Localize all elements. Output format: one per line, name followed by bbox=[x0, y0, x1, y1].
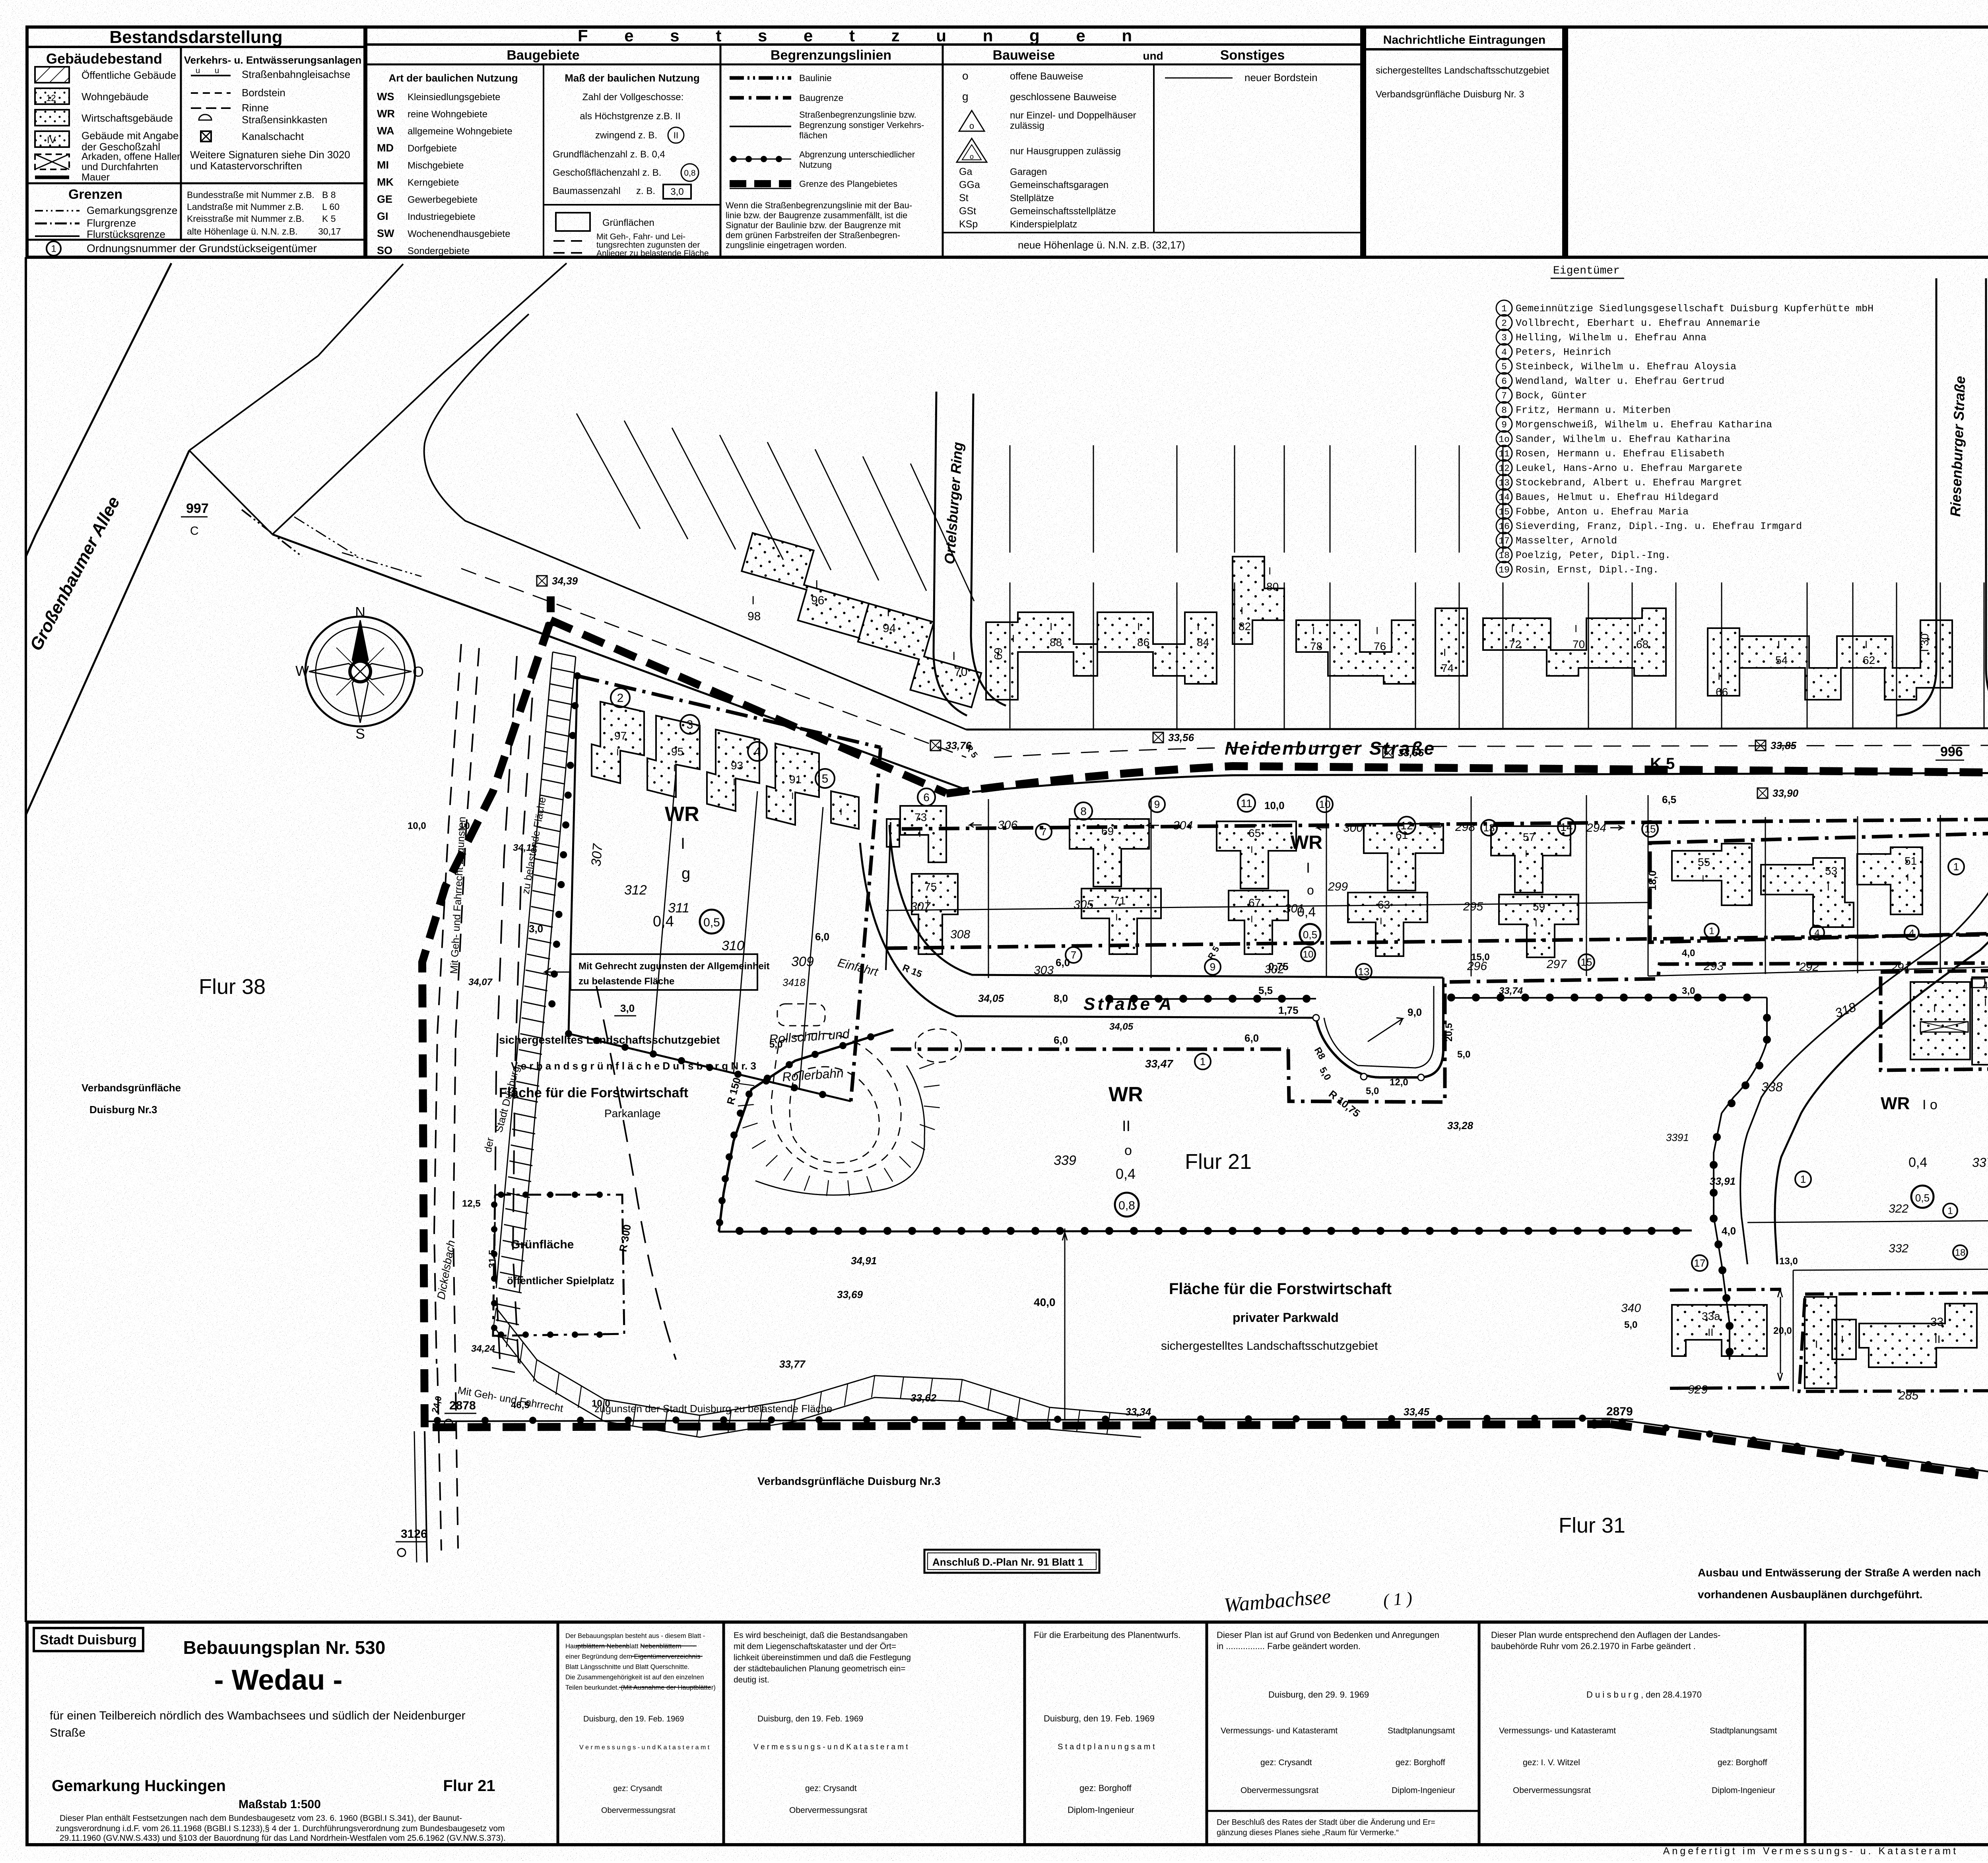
svg-text:Gebäudebestand: Gebäudebestand bbox=[46, 50, 162, 67]
svg-text:5: 5 bbox=[822, 772, 829, 786]
svg-text:Eigentümer: Eigentümer bbox=[1553, 265, 1620, 277]
svg-text:13: 13 bbox=[1358, 966, 1370, 978]
svg-text:Sieverding, Franz, Dipl.-Ing.: Sieverding, Franz, Dipl.-Ing. u. Ehefrau… bbox=[1516, 521, 1802, 532]
svg-text:Blatt Längsschnitte und: Blatt Längsschnitte und Blatt Querschnit… bbox=[565, 1663, 689, 1671]
svg-text:Straßenbahngleisachse: Straßenbahngleisachse bbox=[242, 68, 350, 80]
svg-text:GSt: GSt bbox=[959, 206, 976, 217]
svg-text:0,8: 0,8 bbox=[684, 169, 695, 178]
svg-text:20,0: 20,0 bbox=[1773, 1325, 1792, 1336]
svg-text:o: o bbox=[970, 153, 974, 161]
svg-text:78: 78 bbox=[1310, 640, 1322, 652]
svg-text:Masselter, Arnold: Masselter, Arnold bbox=[1516, 535, 1617, 547]
svg-text:sichergestelltes Landschaft: sichergestelltes Landschaftsschutzgebiet bbox=[499, 1034, 720, 1046]
svg-text:34,91: 34,91 bbox=[851, 1255, 877, 1267]
svg-text:297: 297 bbox=[1546, 958, 1567, 971]
svg-text:privater Parkwald: privater Parkwald bbox=[1233, 1310, 1339, 1325]
svg-text:Nachrichtliche Eintragungen: Nachrichtliche Eintragungen bbox=[1383, 33, 1545, 47]
svg-text:5,5: 5,5 bbox=[1258, 984, 1273, 996]
svg-text:0,75: 0,75 bbox=[1268, 961, 1289, 972]
svg-text:II: II bbox=[1934, 1333, 1941, 1345]
svg-text:mit dem Liegenschaftskataster: mit dem Liegenschaftskataster und der Ör… bbox=[734, 1642, 896, 1651]
svg-text:Flur 21: Flur 21 bbox=[443, 1777, 495, 1795]
svg-text:7: 7 bbox=[1041, 826, 1046, 838]
svg-text:I: I bbox=[1865, 638, 1868, 650]
svg-text:3,0: 3,0 bbox=[529, 923, 543, 935]
svg-text:Dorfgebiete: Dorfgebiete bbox=[408, 143, 457, 154]
svg-text:Dieser Plan ist auf Grund von: Dieser Plan ist auf Grund von Bedenken u… bbox=[1217, 1630, 1439, 1640]
svg-text:304: 304 bbox=[1173, 819, 1193, 832]
svg-text:geschlossene Bauweise: geschlossene Bauweise bbox=[1010, 91, 1116, 103]
svg-text:GI: GI bbox=[377, 210, 388, 222]
svg-text:- Wedau -: - Wedau - bbox=[214, 1664, 343, 1696]
svg-text:6,0: 6,0 bbox=[1056, 957, 1070, 968]
svg-text:I: I bbox=[1197, 621, 1200, 633]
svg-text:I: I bbox=[1306, 860, 1310, 876]
svg-text:vorhandenen Ausbauplänen d: vorhandenen Ausbauplänen durchgeführt. bbox=[1698, 1588, 1922, 1601]
svg-text:deutig ist.: deutig ist. bbox=[734, 1675, 769, 1684]
svg-text:4: 4 bbox=[754, 745, 761, 759]
svg-text:Duisburg Nr.3: Duisburg Nr.3 bbox=[89, 1104, 157, 1116]
svg-text:I: I bbox=[1702, 873, 1705, 884]
svg-text:57: 57 bbox=[1523, 831, 1535, 843]
svg-text:Vermessungs- und Katasteramt: Vermessungs- und Katasteramt bbox=[1499, 1726, 1616, 1735]
svg-text:Begrenzung sonstiger Verkehrs-: Begrenzung sonstiger Verkehrs- bbox=[799, 120, 924, 130]
svg-text:10,0: 10,0 bbox=[408, 821, 426, 831]
svg-text:Mit Gehrecht zugunsten der All: Mit Gehrecht zugunsten der Allgemeinheit bbox=[579, 961, 770, 972]
svg-text:51: 51 bbox=[1905, 855, 1917, 867]
svg-text:10,0: 10,0 bbox=[592, 1398, 610, 1409]
svg-text:Ga: Ga bbox=[959, 166, 972, 177]
svg-text:1: 1 bbox=[1953, 861, 1959, 873]
svg-text:298: 298 bbox=[1455, 821, 1475, 834]
svg-text:Angefertigt im Vermessungs-: Angefertigt im Vermessungs- u. Katastera… bbox=[1663, 1846, 1959, 1857]
svg-text:33,85: 33,85 bbox=[1771, 739, 1797, 751]
svg-text:II: II bbox=[674, 130, 678, 140]
svg-text:zulässig: zulässig bbox=[1010, 120, 1044, 131]
svg-text:Ordnungsnummer der Grundstüc: Ordnungsnummer der Grundstückseigentümer bbox=[87, 242, 317, 254]
svg-text:300: 300 bbox=[1343, 821, 1363, 834]
svg-text:Verbandsgrünfläche: Verbandsgrünfläche bbox=[82, 1082, 181, 1094]
svg-text:2878: 2878 bbox=[449, 1399, 476, 1412]
svg-text:Leukel, Hans-Arno u. Ehefrau M: Leukel, Hans-Arno u. Ehefrau Margarete bbox=[1516, 463, 1742, 474]
svg-text:285: 285 bbox=[1898, 1389, 1918, 1402]
svg-text:O: O bbox=[413, 664, 424, 680]
svg-text:Stadt Duisburg: Stadt Duisburg bbox=[40, 1632, 137, 1648]
svg-text:Kerngebiete: Kerngebiete bbox=[408, 177, 459, 188]
svg-text:I: I bbox=[1638, 623, 1641, 635]
svg-text:WA: WA bbox=[377, 125, 394, 137]
svg-text:70: 70 bbox=[1573, 638, 1585, 650]
svg-text:67: 67 bbox=[1248, 897, 1261, 909]
svg-text:3391: 3391 bbox=[1666, 1131, 1689, 1143]
svg-text:69: 69 bbox=[1101, 825, 1114, 837]
svg-text:I: I bbox=[1398, 846, 1400, 857]
svg-text:10: 10 bbox=[1303, 949, 1314, 960]
svg-text:88: 88 bbox=[1050, 636, 1062, 648]
svg-text:Wochenendhausgebiete: Wochenendhausgebiete bbox=[408, 229, 510, 239]
svg-text:sichergestelltes Landschaft: sichergestelltes Landschaftsschutzgebiet bbox=[1161, 1339, 1378, 1353]
svg-text:Baugrenze: Baugrenze bbox=[799, 93, 843, 103]
svg-text:Steinbeck, Wilhelm u. Ehefrau: Steinbeck, Wilhelm u. Ehefrau Aloysia bbox=[1516, 361, 1736, 373]
svg-text:0,5: 0,5 bbox=[703, 916, 720, 929]
svg-text:12,0: 12,0 bbox=[1390, 1077, 1408, 1088]
svg-text:12: 12 bbox=[1400, 819, 1413, 832]
svg-text:339: 339 bbox=[1054, 1153, 1076, 1168]
svg-text:I: I bbox=[1906, 872, 1909, 883]
svg-text:53: 53 bbox=[1825, 865, 1837, 877]
svg-text:o: o bbox=[962, 70, 969, 82]
svg-text:I o: I o bbox=[1922, 1097, 1938, 1112]
svg-text:Kleinsiedlungsgebiete: Kleinsiedlungsgebiete bbox=[408, 92, 501, 103]
svg-text:Diplom-Ingenieur: Diplom-Ingenieur bbox=[1392, 1786, 1455, 1795]
svg-text:allgemeine Wohngebiete: allgemeine Wohngebiete bbox=[408, 126, 513, 137]
svg-text:14: 14 bbox=[1499, 493, 1510, 503]
svg-text:u: u bbox=[196, 66, 200, 75]
svg-text:Obervermessungsrat: Obervermessungsrat bbox=[1513, 1786, 1591, 1795]
svg-text:nur Einzel- und Doppelhäuser: nur Einzel- und Doppelhäuser bbox=[1010, 110, 1136, 121]
svg-text:4: 4 bbox=[1909, 928, 1914, 938]
svg-text:4,0: 4,0 bbox=[1722, 1225, 1736, 1237]
svg-text:11: 11 bbox=[1499, 449, 1510, 459]
svg-text:Grünfläche: Grünfläche bbox=[511, 1238, 574, 1251]
svg-text:Bundesstraße mit Nummer z.B.: Bundesstraße mit Nummer z.B. bbox=[187, 190, 315, 200]
svg-text:Straßensinkkasten: Straßensinkkasten bbox=[242, 114, 327, 126]
svg-text:82: 82 bbox=[1239, 620, 1251, 633]
svg-text:14: 14 bbox=[1560, 821, 1573, 833]
svg-text:I: I bbox=[751, 594, 755, 607]
svg-text:I: I bbox=[815, 578, 818, 591]
svg-text:59: 59 bbox=[1533, 900, 1545, 913]
svg-text:8: 8 bbox=[1080, 805, 1087, 817]
svg-text:gez: Crysandt: gez: Crysandt bbox=[805, 1784, 857, 1793]
svg-text:zugunsten der Stadt Duisbur: zugunsten der Stadt Duisburg zu belasten… bbox=[594, 1403, 832, 1415]
svg-text:I: I bbox=[681, 835, 685, 852]
svg-text:9: 9 bbox=[1210, 961, 1215, 973]
svg-text:Dieser Plan enthält Festset: Dieser Plan enthält Festsetzungen nach d… bbox=[60, 1814, 462, 1823]
svg-text:Bordstein: Bordstein bbox=[242, 87, 285, 99]
svg-text:Verbandsgrünfläche Duisburg N: Verbandsgrünfläche Duisburg Nr.3 bbox=[757, 1475, 941, 1487]
svg-text:293: 293 bbox=[1703, 960, 1724, 973]
svg-text:dem grünen Farbstreifen der St: dem grünen Farbstreifen der Straßenbegre… bbox=[726, 230, 900, 240]
svg-text:WR: WR bbox=[1109, 1083, 1143, 1106]
svg-text:63: 63 bbox=[1378, 899, 1390, 911]
svg-text:Garagen: Garagen bbox=[1010, 167, 1047, 177]
svg-text:1o: 1o bbox=[1499, 435, 1510, 445]
svg-text:öffentlicher Spielplatz: öffentlicher Spielplatz bbox=[507, 1275, 614, 1287]
svg-text:Der Bebauungsplan besteht a: Der Bebauungsplan besteht aus - diesem B… bbox=[565, 1632, 705, 1640]
svg-text:Mischgebiete: Mischgebiete bbox=[408, 160, 464, 171]
svg-text:98: 98 bbox=[747, 610, 761, 623]
svg-text:9: 9 bbox=[1154, 798, 1160, 810]
svg-text:K 5: K 5 bbox=[322, 213, 336, 224]
svg-text:I: I bbox=[791, 791, 794, 801]
svg-text:Obervermessungsrat: Obervermessungsrat bbox=[789, 1806, 867, 1815]
svg-text:91: 91 bbox=[789, 773, 802, 786]
svg-text:17: 17 bbox=[1694, 1257, 1706, 1269]
svg-text:Baugebiete: Baugebiete bbox=[507, 48, 579, 63]
svg-text:WS: WS bbox=[377, 91, 394, 103]
svg-text:312: 312 bbox=[624, 883, 647, 898]
svg-text:0,4: 0,4 bbox=[1297, 904, 1316, 920]
svg-text:33,45: 33,45 bbox=[1404, 1406, 1430, 1418]
svg-text:Dieser Plan wurde entsprechend: Dieser Plan wurde entsprechend den Aufla… bbox=[1491, 1630, 1720, 1640]
svg-text:I 30: I 30 bbox=[1918, 633, 1931, 652]
svg-text:Rinne: Rinne bbox=[242, 102, 269, 114]
svg-text:gez: Borghoff: gez: Borghoff bbox=[1718, 1758, 1767, 1767]
svg-text:zungsverordnung i.d.F. vom 26.: zungsverordnung i.d.F. vom 26.11.1968 (B… bbox=[56, 1824, 505, 1833]
svg-text:o: o bbox=[1307, 883, 1314, 897]
svg-text:13,0: 13,0 bbox=[1779, 1256, 1798, 1267]
svg-text:Duisburg, den 19. Feb. 1969: Duisburg, den 19. Feb. 1969 bbox=[1044, 1714, 1155, 1723]
svg-text:I: I bbox=[1777, 638, 1780, 650]
svg-text:Obervermessungsrat: Obervermessungsrat bbox=[1241, 1786, 1318, 1795]
svg-text:linie bzw. der Baugrenze zusam: linie bzw. der Baugrenze zusammenfällt, … bbox=[726, 210, 907, 220]
svg-text:I: I bbox=[1827, 882, 1830, 893]
svg-text:33,34: 33,34 bbox=[1125, 1406, 1151, 1418]
svg-text:1: 1 bbox=[51, 243, 56, 254]
svg-text:12: 12 bbox=[1499, 464, 1510, 474]
svg-text:86: 86 bbox=[1137, 636, 1149, 648]
svg-text:19: 19 bbox=[1499, 565, 1510, 575]
svg-text:V e r m e s s u n g s - u n d: V e r m e s s u n g s - u n d K a t a s … bbox=[753, 1743, 908, 1751]
svg-text:3,0: 3,0 bbox=[620, 1002, 635, 1014]
svg-text:I: I bbox=[1268, 565, 1271, 577]
svg-text:6,5: 6,5 bbox=[1662, 794, 1676, 805]
svg-text:gez: Crysandt: gez: Crysandt bbox=[613, 1784, 662, 1793]
svg-text:Gemeinschaftsgaragen: Gemeinschaftsgaragen bbox=[1010, 180, 1109, 190]
svg-text:in ................ Farbe geä: in ................ Farbe geändert worde… bbox=[1217, 1641, 1361, 1651]
svg-text:Gemeinnützige Siedlungsgesells: Gemeinnützige Siedlungsgesellschaft Duis… bbox=[1516, 303, 1873, 314]
svg-text:338: 338 bbox=[1761, 1080, 1783, 1094]
svg-text:Landstraße mit Nummer z.B.: Landstraße mit Nummer z.B. bbox=[187, 202, 304, 212]
svg-text:Grünflächen: Grünflächen bbox=[602, 217, 654, 228]
svg-text:Kinderspielplatz: Kinderspielplatz bbox=[1010, 219, 1077, 230]
svg-text:307: 307 bbox=[911, 900, 931, 913]
svg-text:340: 340 bbox=[1621, 1302, 1641, 1315]
svg-text:Zahl der Vollgeschosse:: Zahl der Vollgeschosse: bbox=[582, 92, 684, 103]
svg-text:offene Bauweise: offene Bauweise bbox=[1010, 71, 1083, 82]
svg-text:Öffentliche Gebäude: Öffentliche Gebäude bbox=[82, 69, 176, 81]
svg-text:Gemarkungsgrenze: Gemarkungsgrenze bbox=[87, 204, 177, 216]
svg-text:33,74: 33,74 bbox=[1499, 986, 1523, 996]
svg-text:929: 929 bbox=[1688, 1383, 1708, 1396]
svg-text:gez: Borghoff: gez: Borghoff bbox=[1396, 1758, 1445, 1767]
svg-text:I: I bbox=[918, 829, 921, 839]
svg-text:10,0: 10,0 bbox=[459, 821, 478, 831]
svg-text:Diplom-Ingenieur: Diplom-Ingenieur bbox=[1068, 1805, 1134, 1815]
svg-text:54: 54 bbox=[1775, 654, 1788, 666]
svg-text:34,24: 34,24 bbox=[471, 1343, 495, 1354]
svg-text:337: 337 bbox=[1972, 1155, 1988, 1170]
svg-text:S t a d t p l a n u n g s a m: S t a d t p l a n u n g s a m t bbox=[1058, 1743, 1155, 1751]
svg-text:baubehörde Ruhr vom 26.2.1970: baubehörde Ruhr vom 26.2.1970 in Farbe g… bbox=[1491, 1641, 1696, 1651]
svg-text:6: 6 bbox=[1501, 376, 1507, 387]
svg-text:Helling, Wilhelm u. Ehefrau An: Helling, Wilhelm u. Ehefrau Anna bbox=[1516, 332, 1706, 343]
svg-text:I: I bbox=[1718, 670, 1720, 682]
svg-text:Flur 21: Flur 21 bbox=[1185, 1150, 1252, 1174]
svg-text:33,69: 33,69 bbox=[837, 1289, 863, 1300]
svg-text:299: 299 bbox=[1328, 880, 1348, 893]
svg-text:2: 2 bbox=[617, 692, 624, 705]
svg-text:8,0: 8,0 bbox=[1054, 992, 1068, 1004]
svg-text:46,5: 46,5 bbox=[511, 1400, 530, 1411]
svg-text:Rosin, Ernst, Dipl.-Ing.: Rosin, Ernst, Dipl.-Ing. bbox=[1516, 564, 1659, 576]
svg-text:I: I bbox=[733, 777, 736, 788]
svg-text:MK: MK bbox=[377, 176, 394, 188]
svg-text:g: g bbox=[962, 90, 969, 103]
svg-text:1: 1 bbox=[1501, 304, 1507, 314]
svg-text:Für die Erarbeitung des Planen: Für die Erarbeitung des Planentwurfs. bbox=[1034, 1630, 1180, 1640]
svg-text:6,0: 6,0 bbox=[1244, 1032, 1259, 1044]
svg-text:3: 3 bbox=[687, 718, 693, 732]
svg-text:SW: SW bbox=[377, 227, 394, 239]
svg-text:5: 5 bbox=[1501, 362, 1507, 372]
svg-text:Bestandsdarstellung: Bestandsdarstellung bbox=[109, 27, 282, 47]
svg-text:40,0: 40,0 bbox=[1034, 1296, 1056, 1308]
svg-text:Wenn die Straßenbegrenzungslin: Wenn die Straßenbegrenzungslinie mit der… bbox=[726, 200, 912, 210]
svg-text:311: 311 bbox=[668, 900, 689, 916]
svg-text:15,0: 15,0 bbox=[1471, 952, 1490, 963]
svg-text:I: I bbox=[1137, 621, 1140, 633]
svg-text:1: 1 bbox=[1947, 1205, 1953, 1216]
svg-text:18: 18 bbox=[1955, 1247, 1966, 1258]
svg-text:II: II bbox=[1122, 1118, 1130, 1135]
svg-text:Duisburg, den 19. Feb. 1969: Duisburg, den 19. Feb. 1969 bbox=[757, 1714, 863, 1723]
svg-text:I: I bbox=[952, 650, 955, 663]
svg-text:305: 305 bbox=[1074, 898, 1093, 911]
svg-text:73: 73 bbox=[914, 811, 927, 823]
svg-text:I: I bbox=[840, 807, 843, 817]
svg-text:Grenzen: Grenzen bbox=[68, 187, 122, 202]
svg-text:Anlieger zu belastende Fläche: Anlieger zu belastende Fläche bbox=[596, 249, 709, 258]
svg-text:I: I bbox=[1933, 1002, 1936, 1014]
svg-text:74: 74 bbox=[1441, 662, 1454, 674]
svg-text:3: 3 bbox=[1501, 333, 1507, 343]
svg-text:Industriegebiete: Industriegebiete bbox=[408, 212, 476, 222]
svg-text:65: 65 bbox=[1248, 827, 1261, 839]
svg-text:9,0: 9,0 bbox=[1408, 1006, 1422, 1018]
svg-text:Stadtplanungsamt: Stadtplanungsamt bbox=[1388, 1726, 1455, 1735]
svg-text:45: 45 bbox=[1982, 980, 1988, 992]
svg-text:L 60: L 60 bbox=[322, 202, 340, 212]
svg-text:11: 11 bbox=[1241, 797, 1252, 809]
svg-text:St: St bbox=[959, 192, 969, 204]
svg-text:75: 75 bbox=[924, 881, 937, 893]
svg-text:Sonstiges: Sonstiges bbox=[1220, 48, 1285, 63]
svg-text:gez: Crysandt: gez: Crysandt bbox=[1260, 1758, 1312, 1767]
svg-text:306: 306 bbox=[998, 819, 1017, 832]
svg-text:Anschluß D.-Plan Nr. 91 Blat: Anschluß D.-Plan Nr. 91 Blatt 1 bbox=[932, 1556, 1083, 1568]
svg-text:309: 309 bbox=[791, 954, 814, 969]
svg-text:Sondergebiete: Sondergebiete bbox=[408, 246, 470, 256]
svg-text:I: I bbox=[1511, 623, 1514, 635]
svg-text:3,0: 3,0 bbox=[670, 186, 683, 197]
svg-text:69: 69 bbox=[992, 648, 1004, 660]
svg-text:71: 71 bbox=[1113, 895, 1126, 907]
svg-text:294: 294 bbox=[1586, 821, 1606, 834]
svg-text:33,77: 33,77 bbox=[779, 1358, 806, 1370]
svg-text:0,5: 0,5 bbox=[1915, 1192, 1930, 1204]
svg-text:0,4: 0,4 bbox=[1908, 1155, 1927, 1170]
svg-text:lichkeit übereinstimmen und da: lichkeit übereinstimmen und daß die Fest… bbox=[734, 1653, 911, 1662]
svg-text:Baulinie: Baulinie bbox=[799, 73, 832, 83]
svg-text:WR: WR bbox=[1881, 1094, 1910, 1113]
svg-text:B 8: B 8 bbox=[322, 190, 336, 200]
svg-text:Diplom-Ingenieur: Diplom-Ingenieur bbox=[1712, 1786, 1775, 1795]
svg-text:Duisburg, den 29. 9. 1969: Duisburg, den 29. 9. 1969 bbox=[1268, 1690, 1369, 1700]
svg-text:o: o bbox=[1124, 1143, 1132, 1158]
svg-text:u: u bbox=[215, 66, 219, 75]
svg-text:95: 95 bbox=[671, 745, 683, 758]
svg-text:tungsrechten zugunsten der: tungsrechten zugunsten der bbox=[596, 241, 700, 250]
svg-text:Begrenzungslinien: Begrenzungslinien bbox=[771, 48, 891, 63]
svg-text:17: 17 bbox=[1499, 536, 1510, 546]
svg-text:34,07: 34,07 bbox=[468, 977, 493, 988]
svg-text:16: 16 bbox=[1499, 522, 1510, 532]
svg-text:sichergestelltes Landschaftss: sichergestelltes Landschaftsschutzgebiet bbox=[1376, 65, 1549, 76]
svg-text:15: 15 bbox=[1499, 507, 1510, 517]
svg-text:6: 6 bbox=[923, 791, 930, 803]
svg-text:I: I bbox=[1312, 625, 1315, 637]
svg-text:gez: I. V. Witzel: gez: I. V. Witzel bbox=[1523, 1758, 1580, 1767]
svg-text:310: 310 bbox=[722, 938, 744, 953]
svg-text:Abgrenzung unterschiedlicher: Abgrenzung unterschiedlicher bbox=[799, 149, 915, 159]
svg-text:IV: IV bbox=[47, 135, 56, 146]
svg-text:6,0: 6,0 bbox=[815, 931, 829, 943]
svg-text:9: 9 bbox=[1501, 420, 1507, 430]
svg-text:7: 7 bbox=[1501, 391, 1507, 401]
svg-text:34,05: 34,05 bbox=[978, 992, 1004, 1004]
svg-text:Flurstücksgrenze: Flurstücksgrenze bbox=[87, 228, 165, 240]
svg-text:997: 997 bbox=[186, 501, 209, 516]
svg-text:I: I bbox=[1525, 848, 1528, 859]
svg-text:Flurgrenze: Flurgrenze bbox=[87, 217, 136, 229]
svg-text:18,0: 18,0 bbox=[1646, 870, 1658, 891]
svg-text:Ausbau und Entwässerung der: Ausbau und Entwässerung der Straße A wer… bbox=[1698, 1566, 1981, 1579]
svg-text:33,62: 33,62 bbox=[911, 1392, 937, 1404]
svg-text:Die Zusammengehörigkeit ist: Die Zusammengehörigkeit ist auf den einz… bbox=[565, 1674, 704, 1681]
svg-text:I: I bbox=[1050, 621, 1052, 633]
svg-text:g: g bbox=[681, 865, 690, 882]
svg-text:Fobbe, Anton u. Ehefrau Maria: Fobbe, Anton u. Ehefrau Maria bbox=[1516, 506, 1689, 518]
svg-text:Grundflächenzahl z. B. 0,4: Grundflächenzahl z. B. 0,4 bbox=[553, 149, 665, 160]
svg-text:Baues, Helmut u. Ehefrau Hilde: Baues, Helmut u. Ehefrau Hildegard bbox=[1516, 492, 1718, 503]
svg-text:II: II bbox=[1708, 1326, 1713, 1338]
svg-text:und: und bbox=[1143, 50, 1163, 62]
svg-text:als Höchstgrenze z.B. II: als Höchstgrenze z.B. II bbox=[580, 111, 680, 122]
svg-text:Kreisstraße mit Nummer z.B.: Kreisstraße mit Nummer z.B. bbox=[187, 213, 304, 224]
svg-text:33,66: 33,66 bbox=[1398, 747, 1424, 759]
svg-text:4,0: 4,0 bbox=[1682, 948, 1695, 959]
svg-text:GGa: GGa bbox=[959, 179, 980, 190]
svg-text:0,4: 0,4 bbox=[653, 913, 674, 930]
svg-text:Wirtschaftsgebäude: Wirtschaftsgebäude bbox=[82, 112, 173, 124]
svg-text:1: 1 bbox=[1800, 1173, 1806, 1185]
svg-text:Morgenschweiß, Wilhelm u. Ehef: Morgenschweiß, Wilhelm u. Ehefrau Kathar… bbox=[1516, 419, 1772, 431]
svg-text:WR: WR bbox=[665, 803, 699, 826]
svg-text:KSp: KSp bbox=[959, 219, 978, 230]
svg-text:und Katastervorschriften: und Katastervorschriften bbox=[190, 160, 302, 172]
svg-text:5,0: 5,0 bbox=[1624, 1320, 1637, 1330]
svg-text:V e r m e s s u n g s - u n d: V e r m e s s u n g s - u n d K a t a s … bbox=[579, 1744, 710, 1751]
svg-text:GE: GE bbox=[377, 193, 392, 205]
svg-text:76: 76 bbox=[1374, 640, 1386, 652]
svg-text:Arkaden, offene Hallen: Arkaden, offene Hallen bbox=[82, 151, 182, 162]
svg-text:33,76: 33,76 bbox=[945, 739, 972, 751]
svg-text:Verbandsgrünfläche Duisburg: Verbandsgrünfläche Duisburg Nr. 3 bbox=[1376, 89, 1524, 100]
svg-text:Nutzung: Nutzung bbox=[799, 160, 832, 170]
svg-text:I: I bbox=[1380, 916, 1382, 927]
